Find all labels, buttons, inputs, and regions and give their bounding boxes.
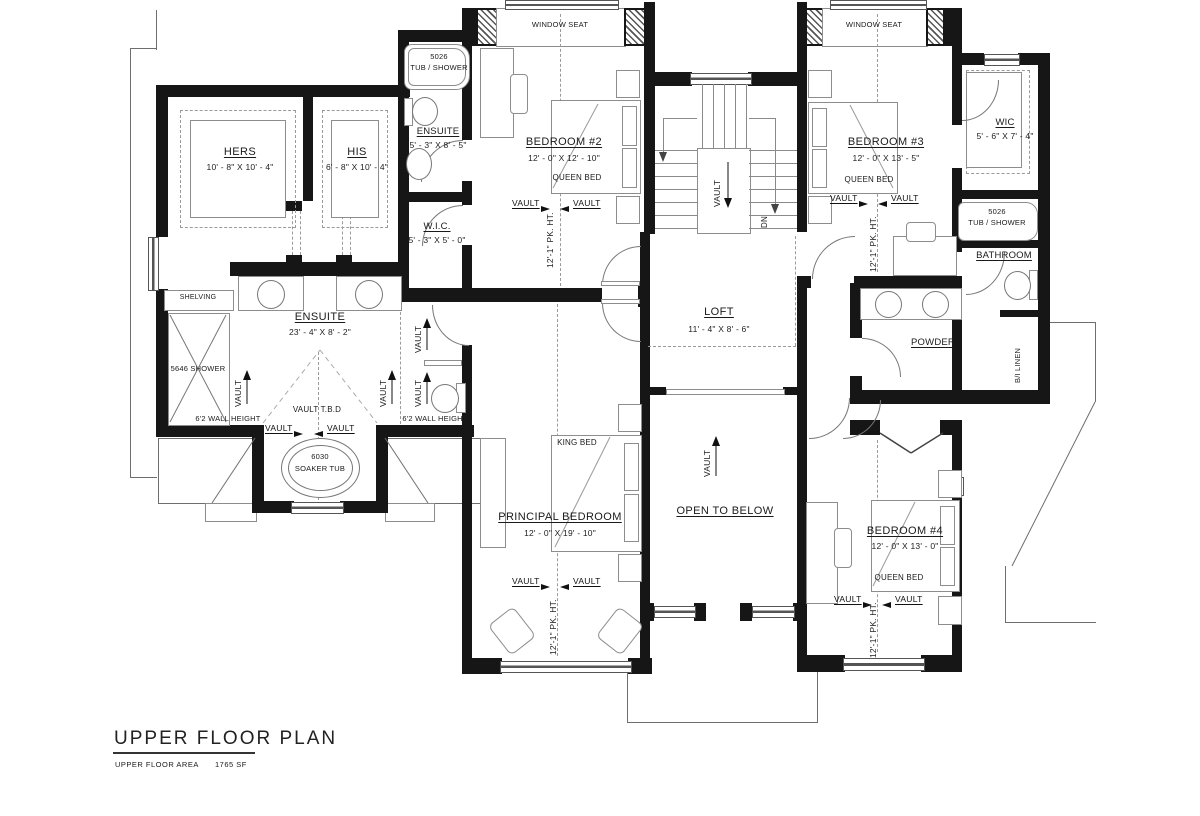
room-label-open-below: OPEN TO BELOW (676, 505, 773, 517)
shower-label: 5646 SHOWER (171, 364, 226, 373)
french-door-leaf (911, 433, 943, 453)
bed-label-bedroom2: QUEEN BED (553, 173, 602, 182)
arrow-right-icon (859, 201, 868, 207)
bed-label-bedroom4: QUEEN BED (875, 573, 924, 582)
arrow-left-icon (560, 206, 569, 212)
tub-label: TUB / SHOWER (410, 63, 467, 72)
vault-label: VAULT (327, 423, 355, 433)
vault-label-vertical: VAULT (413, 380, 423, 407)
tub-model-label: 5026 (988, 207, 1006, 216)
arrow-up-icon (423, 318, 431, 328)
room-label-bedroom2: BEDROOM #2 (526, 136, 602, 148)
arrow-right-icon (294, 431, 303, 437)
arrow-down-icon (771, 204, 779, 214)
vault-label: VAULT (895, 594, 923, 604)
room-label-bedroom4: BEDROOM #4 (867, 525, 943, 537)
peak-height-label: 12'-1" PK. HT. (868, 216, 878, 272)
detail-lines-overlay (0, 0, 1200, 816)
vault-label: VAULT (512, 576, 540, 586)
vault-label-vertical: VAULT (233, 380, 243, 407)
room-dims-bedroom3: 12' - 0" X 13' - 5" (853, 153, 920, 163)
room-label-principal: PRINCIPAL BEDROOM (498, 511, 622, 523)
vault-label: VAULT (834, 594, 862, 604)
vault-tbd-label: VAULT T.B.D (293, 405, 341, 414)
arrow-left-icon (560, 584, 569, 590)
room-label-wic3: WIC (995, 117, 1014, 128)
vault-label: VAULT (573, 198, 601, 208)
room-label-master-ensuite: ENSUITE (295, 311, 345, 323)
vault-label: VAULT (573, 576, 601, 586)
window-seat-label: WINDOW SEAT (846, 20, 902, 29)
floor-plan-canvas: HERS 10' - 8" X 10' - 4" HIS 6' - 8" X 1… (0, 0, 1200, 816)
room-label-ensuite2: ENSUITE (417, 126, 460, 137)
arrow-down-icon (724, 198, 732, 208)
wall-height-label: 6'2 WALL HEIGHT (195, 414, 260, 423)
soaker-model-label: 6030 (311, 452, 329, 461)
tub-model-label: 5026 (430, 52, 448, 61)
wall-height-label: 6'2 WALL HEIGHT (402, 414, 467, 423)
page-title: UPPER FLOOR PLAN (114, 728, 337, 750)
room-label-his: HIS (347, 146, 367, 158)
vault-label: VAULT (830, 193, 858, 203)
vault-label-vertical: VAULT (702, 450, 712, 477)
room-label-hers: HERS (224, 146, 256, 158)
vault-label: VAULT (512, 198, 540, 208)
tub-label: TUB / SHOWER (968, 218, 1025, 227)
shelving-label: SHELVING (180, 294, 216, 301)
vault-label: VAULT (265, 423, 293, 433)
room-dims-bedroom4: 12' - 0" X 13' - 0" (872, 541, 939, 551)
peak-height-label: 12'-1" PK. HT. (545, 212, 555, 268)
title-underline (113, 752, 255, 754)
arrow-right-icon (541, 584, 550, 590)
vault-label: VAULT (891, 193, 919, 203)
room-label-bathroom: BATHROOM (976, 250, 1032, 261)
vault-label-vertical: VAULT (378, 380, 388, 407)
room-dims-ensuite2: 5' - 3" X 8' - 5" (409, 140, 466, 150)
peak-height-label: 12'-1" PK. HT. (868, 602, 878, 658)
roof-diagonal (212, 438, 255, 503)
down-label: DN (760, 216, 769, 228)
area-label: UPPER FLOOR AREA (115, 760, 199, 769)
arrow-left-icon (314, 431, 323, 437)
area-value: 1765 SF (215, 760, 247, 769)
room-label-wic2: W.I.C. (423, 221, 450, 232)
vault-label-vertical: VAULT (413, 326, 423, 353)
arrow-up-icon (388, 370, 396, 380)
room-dims-his: 6' - 8" X 10' - 4" (326, 162, 388, 172)
arrow-right-icon (541, 206, 550, 212)
room-label-loft: LOFT (704, 306, 734, 318)
soaker-label: SOAKER TUB (295, 464, 345, 473)
room-dims-principal: 12' - 0" X 19' - 10" (524, 528, 596, 538)
room-label-bedroom3: BEDROOM #3 (848, 136, 924, 148)
room-dims-loft: 11' - 4" X 8' - 6" (688, 324, 749, 334)
arrow-down-icon (659, 152, 667, 162)
vault-label-stairs: VAULT (712, 180, 722, 207)
room-dims-bedroom2: 12' - 0" X 12' - 10" (528, 153, 600, 163)
arrow-up-icon (712, 436, 720, 446)
room-dims-wic2: 5' - 3" X 5' - 0" (408, 235, 465, 245)
peak-height-label: 12'-1" PK. HT. (548, 599, 558, 655)
room-label-powder: POWDER (911, 337, 955, 348)
window-seat-label: WINDOW SEAT (532, 20, 588, 29)
roof-diagonal (1012, 402, 1095, 566)
linen-label: B/I LINEN (1013, 348, 1022, 383)
room-dims-wic3: 5' - 6" X 7' - 4" (976, 131, 1033, 141)
bed-label-bedroom3: QUEEN BED (845, 175, 894, 184)
room-dims-master-ensuite: 23' - 4" X 8' - 2" (289, 327, 351, 337)
roof-diagonal (385, 438, 428, 503)
arrow-up-icon (243, 370, 251, 380)
bed-label-principal: KING BED (557, 438, 597, 447)
french-door-leaf (880, 433, 911, 453)
arrow-left-icon (878, 201, 887, 207)
arrow-up-icon (423, 372, 431, 382)
arrow-left-icon (882, 602, 891, 608)
room-dims-hers: 10' - 8" X 10' - 4" (207, 162, 274, 172)
